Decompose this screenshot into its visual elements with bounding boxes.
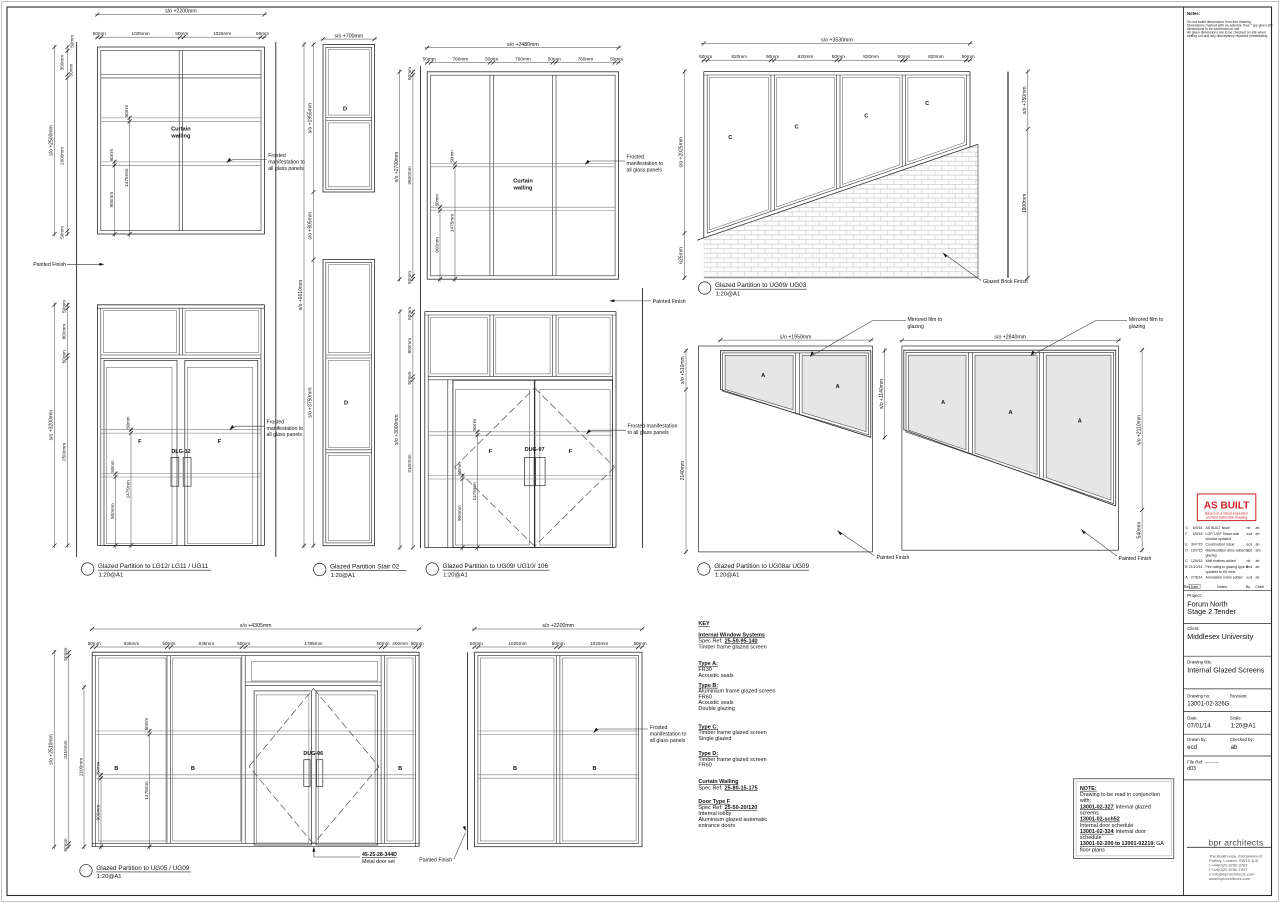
svg-text:File Ref: ----------: File Ref: ---------- <box>1187 759 1219 764</box>
svg-text:updated to 60 mins: updated to 60 mins <box>1206 570 1236 574</box>
svg-text:50mm: 50mm <box>63 838 68 851</box>
svg-text:1:20@A1: 1:20@A1 <box>331 573 356 579</box>
svg-text:Single glazed: Single glazed <box>698 736 731 742</box>
svg-text:www.bprarchitects.com: www.bprarchitects.com <box>1209 876 1251 881</box>
svg-text:Glazed Partition to UG09/ UG03: Glazed Partition to UG09/ UG03 <box>715 282 807 289</box>
svg-text:s/o +1955mm: s/o +1955mm <box>308 103 314 133</box>
svg-text:50mm: 50mm <box>472 418 477 431</box>
svg-text:s/o +3200mm: s/o +3200mm <box>49 410 55 440</box>
svg-text:Wall finishes added: Wall finishes added <box>1206 559 1236 563</box>
svg-text:s/o +905mm: s/o +905mm <box>308 212 314 240</box>
svg-text:1025mm: 1025mm <box>213 31 231 36</box>
svg-text:1:20@A1: 1:20@A1 <box>443 572 468 578</box>
svg-text:50mm: 50mm <box>485 57 498 62</box>
svg-text:1475mm: 1475mm <box>125 480 130 498</box>
svg-text:glazing: glazing <box>908 324 925 330</box>
svg-text:bpr architects: bpr architects <box>1208 837 1263 847</box>
svg-text:Frosted: Frosted <box>267 419 285 425</box>
svg-text:walling: walling <box>170 134 191 140</box>
svg-text:s/o +3750mm: s/o +3750mm <box>308 387 314 417</box>
svg-text:Painted Finish: Painted Finish <box>419 858 452 864</box>
svg-text:25-80-15-175: 25-80-15-175 <box>725 785 758 791</box>
svg-text:C: C <box>864 113 868 119</box>
svg-text:nb: nb <box>1247 526 1251 530</box>
svg-text:50mm: 50mm <box>897 54 910 59</box>
svg-text:2100mm: 2100mm <box>407 454 412 472</box>
svg-text:s/o +1950mm: s/o +1950mm <box>780 334 812 340</box>
svg-text:C: C <box>795 124 799 130</box>
svg-text:50mm: 50mm <box>59 226 64 239</box>
svg-text:F: F <box>1185 532 1187 536</box>
svg-text:Curtain: Curtain <box>513 179 533 185</box>
svg-text:50mm: 50mm <box>634 641 647 646</box>
svg-text:ab: ab <box>1256 576 1260 580</box>
svg-text:Painted Finish: Painted Finish <box>1119 556 1152 562</box>
svg-text:walling: walling <box>513 185 534 191</box>
svg-text:DLG-12: DLG-12 <box>171 449 190 455</box>
svg-text:B: B <box>592 766 596 772</box>
svg-text:13001-02-sch52: 13001-02-sch52 <box>1080 817 1120 823</box>
svg-text:By: By <box>1246 585 1250 589</box>
svg-text:50mm: 50mm <box>95 761 100 774</box>
svg-text:window updated: window updated <box>1206 537 1231 541</box>
svg-text:Mirrored film to: Mirrored film to <box>908 317 943 323</box>
svg-text:50mm: 50mm <box>411 641 424 646</box>
svg-text:Frosted manifestation: Frosted manifestation <box>628 424 678 430</box>
svg-text:Drawing no:: Drawing no: <box>1187 694 1210 699</box>
svg-text:50mm: 50mm <box>449 150 454 163</box>
svg-text:820mm: 820mm <box>863 54 879 59</box>
svg-text:ecd: ecd <box>1247 576 1253 580</box>
svg-text:935mm: 935mm <box>124 641 140 646</box>
svg-text:arb: arb <box>1256 549 1261 553</box>
svg-text:all glass panels: all glass panels <box>650 738 686 744</box>
svg-text:50mm: 50mm <box>175 31 188 36</box>
svg-text:13001-02-324: 13001-02-324 <box>1080 829 1114 835</box>
svg-text:1785mm: 1785mm <box>304 641 322 646</box>
svg-text:2410mm: 2410mm <box>63 740 68 758</box>
svg-text:and test instruction drawing: and test instruction drawing <box>1206 515 1247 519</box>
svg-text:21/10/14: 21/10/14 <box>1189 565 1203 569</box>
svg-text:50mm: 50mm <box>62 350 67 363</box>
svg-text:1:20@A1: 1:20@A1 <box>99 572 124 578</box>
svg-text:AS BUILT issue: AS BUILT issue <box>1206 526 1230 530</box>
svg-text:820mm: 820mm <box>731 54 747 59</box>
svg-text:900mm: 900mm <box>109 192 114 208</box>
svg-text:50mm: 50mm <box>63 647 68 660</box>
svg-text:Acoustic seals: Acoustic seals <box>698 673 733 679</box>
svg-text:Revision:: Revision: <box>1230 694 1248 699</box>
svg-text:1475mm: 1475mm <box>472 482 477 500</box>
svg-text:ecd: ecd <box>1247 543 1253 547</box>
svg-text:: Internal glazed: : Internal glazed <box>1113 804 1151 810</box>
svg-text:F: F <box>138 439 142 445</box>
svg-text:Chkd: Chkd <box>1255 585 1264 589</box>
svg-text:Metal door set: Metal door set <box>362 859 395 865</box>
svg-text:C: C <box>925 101 929 107</box>
svg-text:760mm: 760mm <box>453 57 469 62</box>
svg-text:2100mm: 2100mm <box>78 758 83 776</box>
svg-text:Frosted: Frosted <box>627 154 645 160</box>
svg-text:400mm: 400mm <box>392 641 408 646</box>
svg-text:s/o +2110mm: s/o +2110mm <box>1136 415 1142 445</box>
svg-text:F: F <box>489 449 493 455</box>
svg-text:30/7/15: 30/7/15 <box>1191 543 1203 547</box>
svg-text:50mm: 50mm <box>62 300 67 313</box>
svg-text:GA: GA <box>1156 841 1164 847</box>
svg-text:Curtain: Curtain <box>171 127 191 133</box>
svg-text:glazing: glazing <box>1206 553 1217 557</box>
svg-text:900mm: 900mm <box>95 805 100 821</box>
svg-text:ab: ab <box>1256 543 1260 547</box>
svg-text:2600mm: 2600mm <box>407 166 412 184</box>
svg-text:s/o +750mm: s/o +750mm <box>1022 86 1028 114</box>
svg-text:50mm: 50mm <box>407 371 412 384</box>
svg-text:ab: ab <box>1256 559 1260 563</box>
svg-text:s/o +2025mm: s/o +2025mm <box>679 137 685 167</box>
svg-text:50mm: 50mm <box>88 641 101 646</box>
svg-text:s/o +700mm: s/o +700mm <box>334 33 363 39</box>
svg-text:50mm: 50mm <box>256 31 269 36</box>
svg-text:s/o +2500mm: s/o +2500mm <box>49 125 55 155</box>
svg-text:Frosted: Frosted <box>650 725 668 731</box>
svg-text:s/o +1140mm: s/o +1140mm <box>879 379 885 409</box>
svg-text:350mm: 350mm <box>59 55 64 70</box>
svg-text:screens: screens <box>1080 811 1099 817</box>
svg-text:s/o +510mm: s/o +510mm <box>680 356 686 384</box>
svg-text:50mm: 50mm <box>470 641 483 646</box>
svg-text:1025mm: 1025mm <box>590 641 608 646</box>
svg-text:Mirrored film to: Mirrored film to <box>1129 317 1164 323</box>
svg-text:2500mm: 2500mm <box>62 443 67 461</box>
svg-text:Internal Glazed Screens: Internal Glazed Screens <box>1187 666 1265 675</box>
svg-text:manifestation to: manifestation to <box>267 426 304 432</box>
svg-text:27/8/14: 27/8/14 <box>1191 576 1203 580</box>
svg-text:Manifestation dims added to: Manifestation dims added to <box>1206 549 1250 553</box>
svg-text:Date:: Date: <box>1187 716 1197 721</box>
svg-text:s/o +2840mm: s/o +2840mm <box>994 335 1026 341</box>
svg-text:Construction Issue: Construction Issue <box>1206 543 1235 547</box>
svg-text:ecd: ecd <box>1247 565 1253 569</box>
svg-text:s/o +4305mm: s/o +4305mm <box>240 623 272 629</box>
svg-text:Middlesex University: Middlesex University <box>1187 632 1253 641</box>
svg-text:820mm: 820mm <box>928 54 944 59</box>
svg-text:ab: ab <box>1256 532 1260 536</box>
svg-text:A: A <box>941 400 945 406</box>
svg-text:A: A <box>1078 419 1082 425</box>
svg-text:1:20@A1: 1:20@A1 <box>1231 724 1257 730</box>
svg-text:1475mm: 1475mm <box>449 214 454 232</box>
svg-text:B: B <box>513 766 517 772</box>
svg-text:F: F <box>569 449 573 455</box>
svg-text:NOTE:: NOTE: <box>1080 786 1097 792</box>
svg-text:50mm: 50mm <box>548 57 561 62</box>
svg-text:Door Type F: Door Type F <box>698 799 730 805</box>
svg-text:s/o +6610mm: s/o +6610mm <box>298 280 304 310</box>
svg-text:50mm: 50mm <box>832 54 845 59</box>
svg-text:schedule: schedule <box>1080 835 1102 841</box>
svg-text:50mm: 50mm <box>610 57 623 62</box>
svg-text:all glass panels: all glass panels <box>627 167 663 173</box>
svg-text:50mm: 50mm <box>70 35 75 48</box>
svg-text:d03: d03 <box>1187 766 1196 772</box>
svg-text:all glass panels: all glass panels <box>268 166 304 172</box>
svg-text:ab: ab <box>1231 745 1238 751</box>
svg-text:AS BUILT: AS BUILT <box>1204 501 1249 512</box>
svg-text:Double glazing: Double glazing <box>698 706 734 712</box>
svg-text:50mm: 50mm <box>962 54 975 59</box>
svg-text:45-25-28-344D: 45-25-28-344D <box>362 852 397 858</box>
svg-text:1475mm: 1475mm <box>144 781 149 799</box>
svg-text:Glazed Partition Stair 02: Glazed Partition Stair 02 <box>330 564 400 571</box>
svg-text:Glazed Brick Finish: Glazed Brick Finish <box>983 279 1028 285</box>
svg-text:manifestation to: manifestation to <box>650 732 687 738</box>
svg-text:900mm: 900mm <box>110 503 115 519</box>
svg-text:ecd: ecd <box>1187 745 1197 751</box>
svg-text:900mm: 900mm <box>457 505 462 521</box>
svg-text:DUG-07: DUG-07 <box>525 447 545 453</box>
svg-text:Glazed Partition to LG12/ LG11: Glazed Partition to LG12/ LG11 / UG11 <box>98 563 209 570</box>
svg-text:Internal door schedule: Internal door schedule <box>1080 823 1133 829</box>
svg-text:manifestation to: manifestation to <box>268 159 305 165</box>
svg-text:A: A <box>761 373 765 379</box>
svg-text:Glazed Partition to UG08a/ UG0: Glazed Partition to UG08a/ UG09 <box>714 563 809 570</box>
svg-text:900mm: 900mm <box>434 237 439 253</box>
svg-text:2000mm: 2000mm <box>59 147 64 165</box>
svg-text:Scale:: Scale: <box>1230 716 1242 721</box>
svg-text:50mm: 50mm <box>423 57 436 62</box>
svg-text:1:20@A1: 1:20@A1 <box>715 572 740 578</box>
svg-text:manifestation to: manifestation to <box>627 161 664 167</box>
svg-text:s/o +2200mm: s/o +2200mm <box>542 623 574 629</box>
svg-text:50mm: 50mm <box>144 718 149 731</box>
svg-text:Annotation notes added: Annotation notes added <box>1206 576 1243 580</box>
svg-text:12/6/15: 12/6/15 <box>1191 559 1203 563</box>
svg-text:Drawing to be read in conjunct: Drawing to be read in conjunction <box>1080 792 1160 798</box>
svg-text:floor plans: floor plans <box>1080 847 1105 853</box>
svg-text:50mm: 50mm <box>434 194 439 207</box>
svg-text:FR60: FR60 <box>698 763 711 769</box>
svg-text:Project:: Project: <box>1187 593 1202 598</box>
svg-text:s/o +2510mm: s/o +2510mm <box>48 734 54 764</box>
svg-text:50mm: 50mm <box>766 54 779 59</box>
svg-text:50mm: 50mm <box>237 641 250 646</box>
svg-text:760mm: 760mm <box>515 57 531 62</box>
svg-text:A: A <box>1008 410 1012 416</box>
svg-text:: Internal door: : Internal door <box>1113 829 1146 835</box>
svg-text:Timber frame glazed screen: Timber frame glazed screen <box>698 644 766 650</box>
svg-text:13001-02-200 to 13001-02219:: 13001-02-200 to 13001-02219: <box>1080 841 1155 847</box>
svg-text:50mm: 50mm <box>699 54 712 59</box>
svg-text:50mm: 50mm <box>407 271 412 284</box>
svg-text:Client:: Client: <box>1187 626 1199 631</box>
svg-text:C: C <box>728 135 732 141</box>
svg-text:D: D <box>343 107 347 113</box>
svg-text:800mm: 800mm <box>62 324 67 340</box>
svg-text:KEY: KEY <box>698 621 710 627</box>
svg-text:6/9/16: 6/9/16 <box>1193 526 1203 530</box>
svg-text:625mm: 625mm <box>679 247 685 264</box>
svg-text:50mm: 50mm <box>93 31 106 36</box>
svg-text:50mm: 50mm <box>376 641 389 646</box>
svg-text:50mm: 50mm <box>110 460 115 473</box>
svg-text:50mm: 50mm <box>162 641 175 646</box>
svg-text:935mm: 935mm <box>198 641 214 646</box>
svg-text:ab: ab <box>1256 565 1260 569</box>
svg-text:D: D <box>344 401 348 407</box>
svg-text:ecd: ecd <box>1247 532 1253 536</box>
svg-text:50mm: 50mm <box>407 307 412 320</box>
svg-text:1475mm: 1475mm <box>124 168 129 186</box>
svg-text:B: B <box>114 766 118 772</box>
svg-text:50mm: 50mm <box>124 104 129 117</box>
svg-text:Painted Finish: Painted Finish <box>877 555 910 561</box>
svg-text:to all glass panels: to all glass panels <box>628 430 670 436</box>
svg-text:50mm: 50mm <box>69 63 74 76</box>
svg-text:entrance doors: entrance doors <box>698 823 735 829</box>
svg-text:nb: nb <box>1247 559 1251 563</box>
svg-text:Glazed Partition to UG05 / UG0: Glazed Partition to UG05 / UG09 <box>96 865 190 872</box>
svg-text:50mm: 50mm <box>552 641 565 646</box>
svg-text:B: B <box>398 766 402 772</box>
svg-text:6/9/15: 6/9/15 <box>1193 532 1203 536</box>
svg-text:Glazed Partition to UG09/ UG10: Glazed Partition to UG09/ UG10/ 106 <box>443 563 549 570</box>
svg-text:50mm: 50mm <box>457 462 462 475</box>
svg-text:800mm: 800mm <box>407 338 412 354</box>
svg-text:setting out and any discrepanc: setting out and any discrepancy reported… <box>1187 34 1268 38</box>
svg-text:1900mm: 1900mm <box>1022 194 1028 213</box>
svg-text:16/7/15: 16/7/15 <box>1191 549 1203 553</box>
svg-text:F: F <box>218 439 222 445</box>
svg-text:LGF/ UGF Shear wall: LGF/ UGF Shear wall <box>1206 532 1240 536</box>
svg-text:s/o +2700mm: s/o +2700mm <box>394 152 400 182</box>
svg-text:50mm: 50mm <box>109 148 114 161</box>
svg-text:Fire rating to glazing type B: Fire rating to glazing type B <box>1206 565 1249 569</box>
svg-text:13001-02-327: 13001-02-327 <box>1080 804 1114 810</box>
svg-text:07/01/14: 07/01/14 <box>1187 724 1211 730</box>
svg-text:760mm: 760mm <box>578 57 594 62</box>
svg-text:Frosted: Frosted <box>268 153 286 159</box>
svg-text:1025mm: 1025mm <box>508 641 526 646</box>
svg-text:Drawing title:: Drawing title: <box>1187 660 1212 665</box>
svg-text:ab: ab <box>1256 526 1260 530</box>
svg-text:Painted Finish: Painted Finish <box>653 299 686 305</box>
svg-text:Stage 2 Tender: Stage 2 Tender <box>1187 607 1236 616</box>
svg-text:s/o +3530mm: s/o +3530mm <box>821 38 853 44</box>
svg-text:B: B <box>191 766 195 772</box>
svg-text:Painted Finish: Painted Finish <box>33 262 66 268</box>
svg-text:all glass panels: all glass panels <box>267 432 303 438</box>
svg-text:540mm: 540mm <box>1136 522 1142 539</box>
svg-text:Notes:: Notes: <box>1187 11 1200 16</box>
svg-text:50mm: 50mm <box>407 67 412 80</box>
svg-text:DUG-06: DUG-06 <box>303 751 323 757</box>
svg-text:Checked by:: Checked by: <box>1230 737 1254 742</box>
svg-text:s/o +3000mm: s/o +3000mm <box>394 414 400 444</box>
svg-text:A: A <box>836 384 840 390</box>
svg-text:Spec Ref:: Spec Ref: <box>698 785 723 791</box>
svg-text:50mm: 50mm <box>125 416 130 429</box>
svg-text:820mm: 820mm <box>798 54 814 59</box>
svg-text:with;: with; <box>1079 798 1092 804</box>
svg-text:1:20@A1: 1:20@A1 <box>716 291 741 297</box>
svg-text:s/o +2480mm: s/o +2480mm <box>507 42 539 48</box>
svg-text:Curtain Walling: Curtain Walling <box>698 779 738 785</box>
svg-text:13001-02-326G: 13001-02-326G <box>1187 702 1229 708</box>
svg-text:G: G <box>1185 526 1188 530</box>
svg-text:1:20@A1: 1:20@A1 <box>97 874 122 880</box>
svg-text:s/o +2200mm: s/o +2200mm <box>165 9 197 15</box>
svg-text:1025mm: 1025mm <box>131 31 149 36</box>
svg-text:Notes: Notes <box>1217 585 1227 589</box>
svg-text:ecd: ecd <box>1247 549 1253 553</box>
svg-text:glazing: glazing <box>1129 324 1146 330</box>
svg-text:Drawn by:: Drawn by: <box>1187 737 1206 742</box>
svg-text:2140mm: 2140mm <box>680 461 686 480</box>
